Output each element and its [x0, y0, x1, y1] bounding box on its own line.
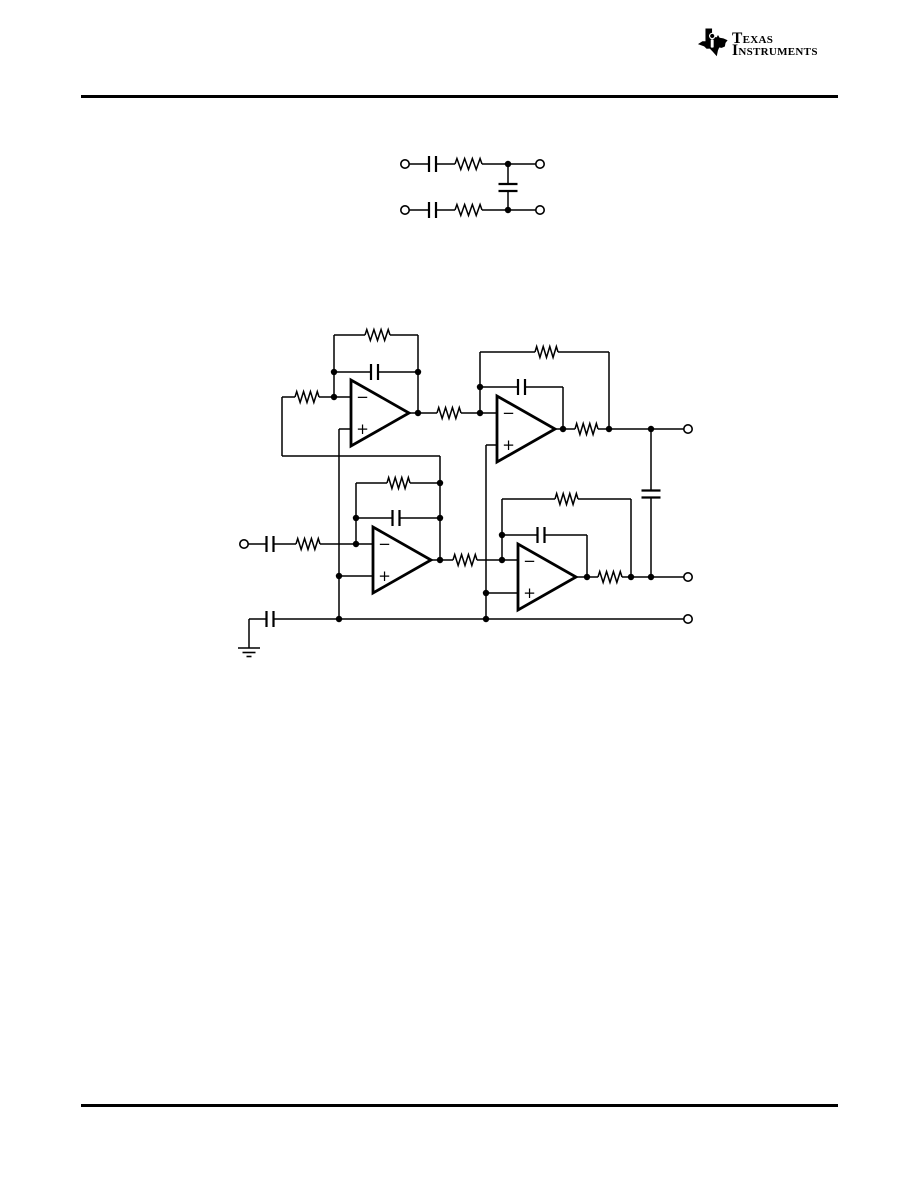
junction-dot [353, 541, 359, 547]
opamp-plus-label: + [502, 436, 515, 454]
junction-dot [437, 557, 443, 563]
resistor [453, 555, 477, 566]
capacitor [499, 184, 518, 191]
junction-dot [331, 369, 337, 375]
terminal [684, 573, 692, 581]
opamp: −+ [351, 380, 409, 446]
junction-dot [336, 616, 342, 622]
junction-dot [505, 161, 511, 167]
junction-dot [331, 394, 337, 400]
resistor [387, 478, 410, 489]
resistor [437, 408, 461, 419]
ground-symbol [238, 648, 260, 657]
terminal [536, 160, 544, 168]
junction-dot [437, 480, 443, 486]
junction-dot [336, 573, 342, 579]
terminal [401, 206, 409, 214]
opamp-plus-label: + [378, 567, 391, 585]
junction-dot [584, 574, 590, 580]
opamp-plus-label: + [356, 420, 369, 438]
capacitor [371, 364, 378, 380]
opamp: −+ [518, 544, 576, 610]
resistor [296, 539, 320, 550]
capacitor [429, 156, 436, 172]
junction-dot [499, 532, 505, 538]
opamp-minus-label: − [378, 535, 391, 553]
resistor [598, 572, 622, 583]
resistor [455, 159, 482, 170]
capacitor [267, 536, 274, 552]
opamp-minus-label: − [502, 404, 515, 422]
resistor [365, 330, 390, 341]
capacitor [538, 527, 545, 543]
resistor [455, 205, 482, 216]
opamp-minus-label: − [523, 552, 536, 570]
terminal [536, 206, 544, 214]
capacitor [267, 611, 274, 627]
terminal [684, 425, 692, 433]
resistor [555, 494, 578, 505]
junction-dot [648, 574, 654, 580]
junction-dot [560, 426, 566, 432]
junction-dot [415, 410, 421, 416]
capacitor [429, 202, 436, 218]
resistor [575, 424, 598, 435]
junction-dot [415, 369, 421, 375]
junction-dot [505, 207, 511, 213]
resistor [535, 347, 558, 358]
datasheet-page: Texas Instruments −+−+−+−+ [0, 0, 918, 1188]
junction-dot [606, 426, 612, 432]
junction-dot [437, 515, 443, 521]
junction-dot [648, 426, 654, 432]
capacitor [642, 491, 661, 498]
junction-dot [477, 410, 483, 416]
terminal [401, 160, 409, 168]
schematic-canvas: −+−+−+−+ [0, 0, 918, 1188]
junction-dot [483, 616, 489, 622]
capacitor [518, 379, 525, 395]
junction-dot [477, 384, 483, 390]
capacitor [393, 510, 400, 526]
terminal [684, 615, 692, 623]
figure-differential-biquad-filter: −+−+−+−+ [238, 330, 692, 657]
opamp-minus-label: − [356, 388, 369, 406]
terminal [240, 540, 248, 548]
figure-differential-rc-network [401, 156, 544, 218]
opamp-plus-label: + [523, 584, 536, 602]
junction-dot [353, 515, 359, 521]
junction-dot [499, 557, 505, 563]
opamp: −+ [373, 527, 431, 593]
junction-dot [628, 574, 634, 580]
junction-dot [483, 590, 489, 596]
resistor [295, 392, 319, 403]
opamp: −+ [497, 396, 555, 462]
footer-rule [81, 1104, 838, 1107]
